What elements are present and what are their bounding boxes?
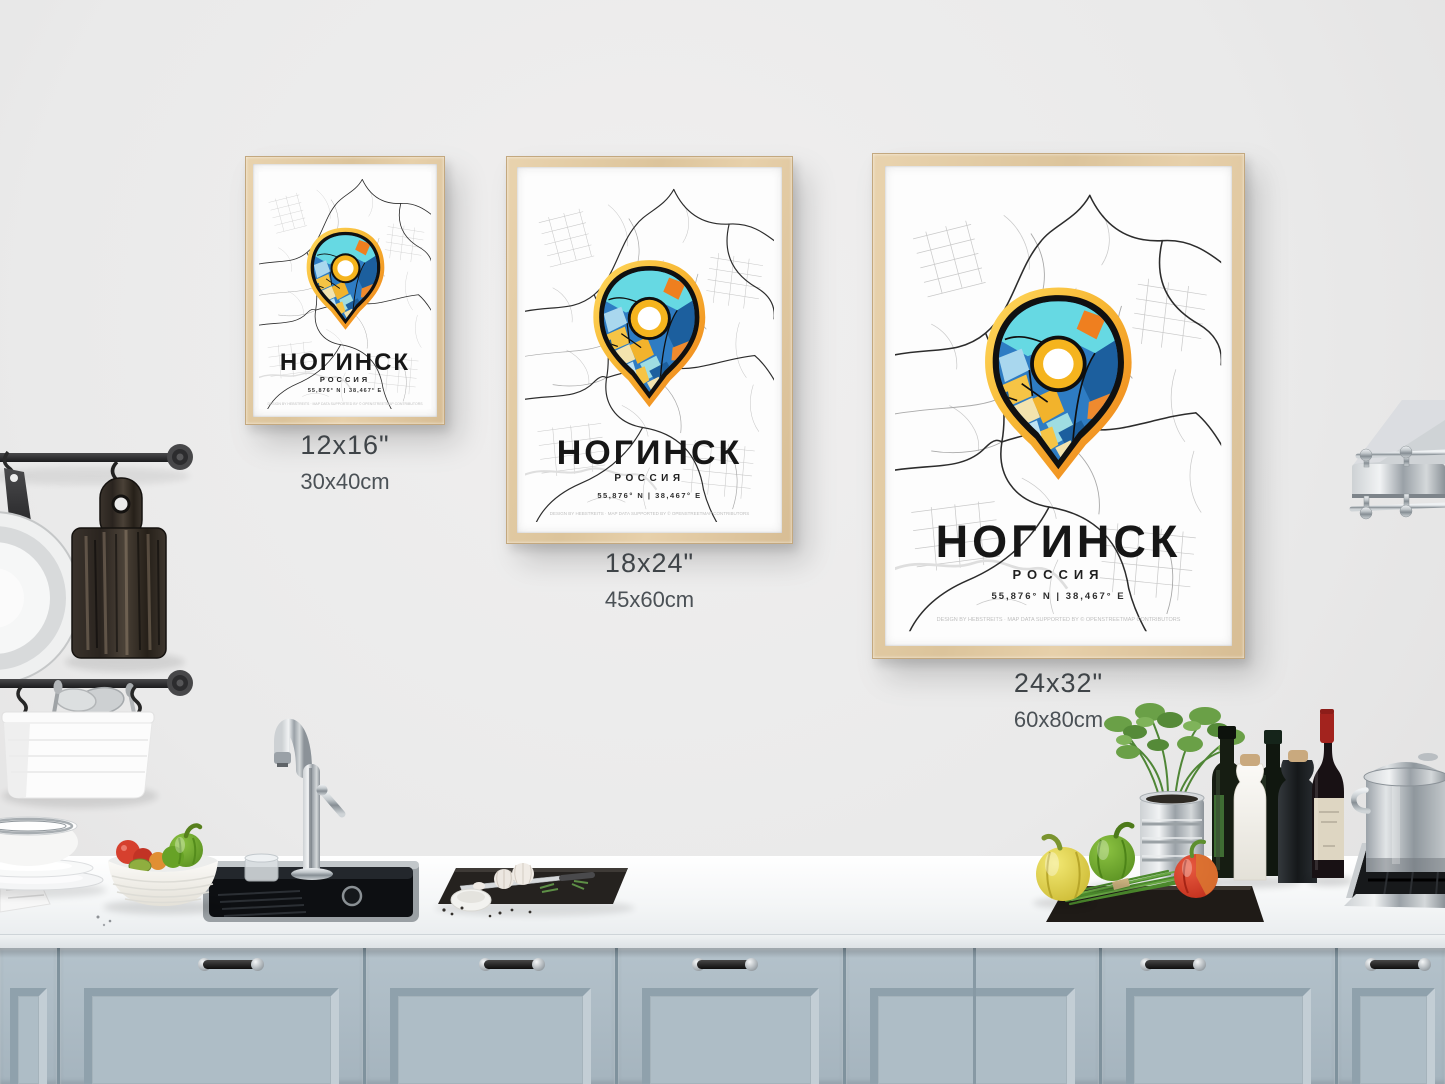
range-hood: [1352, 400, 1445, 519]
wine-label: [1314, 798, 1344, 860]
size-inches: 24x32": [872, 668, 1245, 699]
size-cm: 45x60cm: [506, 587, 793, 613]
map-pin-icon: [982, 286, 1135, 488]
cabinet-drawer: [1338, 948, 1445, 1084]
size-label-medium: 18x24" 45x60cm: [506, 548, 793, 613]
poster-credit: DESIGN BY HEBSTREITS · MAP DATA SUPPORTE…: [253, 402, 437, 406]
poster-credit: DESIGN BY HEBSTREITS · MAP DATA SUPPORTE…: [885, 617, 1232, 623]
poster-coordinates: 55,876° N | 38,467° E: [885, 591, 1232, 602]
cutting-board-hanging: [65, 462, 185, 672]
size-inches: 12x16": [245, 430, 445, 461]
framed-poster-large: НОГИНСК РОССИЯ 55,876° N | 38,467° E DES…: [872, 153, 1245, 659]
kitchen-scene: НОГИНСК РОССИЯ 55,876° N | 38,467° E DES…: [0, 0, 1445, 1084]
countertop-edge: [0, 934, 1445, 948]
size-label-small: 12x16" 30x40cm: [245, 430, 445, 495]
size-label-large: 24x32" 60x80cm: [872, 668, 1245, 733]
poster-large-sheet: НОГИНСК РОССИЯ 55,876° N | 38,467° E DES…: [885, 166, 1232, 646]
poster-title: НОГИНСК: [253, 349, 437, 377]
cabinet-drawer: [366, 948, 615, 1084]
poster-title: НОГИНСК: [885, 516, 1232, 568]
poster-country: РОССИЯ: [517, 473, 782, 484]
size-cm: 60x80cm: [872, 707, 1245, 733]
cabinet-drawer: [618, 948, 843, 1084]
poster-coordinates: 55,876° N | 38,467° E: [253, 388, 437, 394]
frying-pan: [0, 452, 80, 684]
cabinet-double-door: [846, 948, 1099, 1084]
wall-rail-bottom: [0, 670, 193, 696]
cabinet-row: [0, 948, 1445, 1084]
poster-small-sheet: НОГИНСК РОССИЯ 55,876° N | 38,467° E DES…: [253, 164, 437, 417]
poster-country: РОССИЯ: [253, 375, 437, 384]
framed-poster-medium: НОГИНСК РОССИЯ 55,876° N | 38,467° E DES…: [506, 156, 793, 544]
stock-pot: [1354, 753, 1445, 872]
poster-coordinates: 55,876° N | 38,467° E: [517, 491, 782, 500]
drawer-handle: [1365, 956, 1431, 972]
wall-rail-top: [0, 444, 193, 485]
size-cm: 30x40cm: [245, 469, 445, 495]
poster-medium-sheet: НОГИНСК РОССИЯ 55,876° N | 38,467° E DES…: [517, 167, 782, 533]
cutlery: [54, 680, 135, 717]
cabinet-drawer: [1102, 948, 1335, 1084]
cabinet-drawer: [60, 948, 363, 1084]
utensil-bucket: [2, 680, 158, 808]
framed-poster-small: НОГИНСК РОССИЯ 55,876° N | 38,467° E DES…: [245, 156, 445, 425]
map-pin-icon: [305, 227, 386, 333]
cabinet-door: [0, 948, 57, 1084]
poster-credit: DESIGN BY HEBSTREITS · MAP DATA SUPPORTE…: [517, 511, 782, 516]
drawer-handle: [198, 956, 264, 972]
drawer-handle: [692, 956, 758, 972]
drawer-handle: [1140, 956, 1206, 972]
drawer-handle: [479, 956, 545, 972]
poster-country: РОССИЯ: [885, 567, 1232, 582]
poster-title: НОГИНСК: [517, 434, 782, 473]
map-pin-icon: [591, 259, 708, 413]
size-inches: 18x24": [506, 548, 793, 579]
